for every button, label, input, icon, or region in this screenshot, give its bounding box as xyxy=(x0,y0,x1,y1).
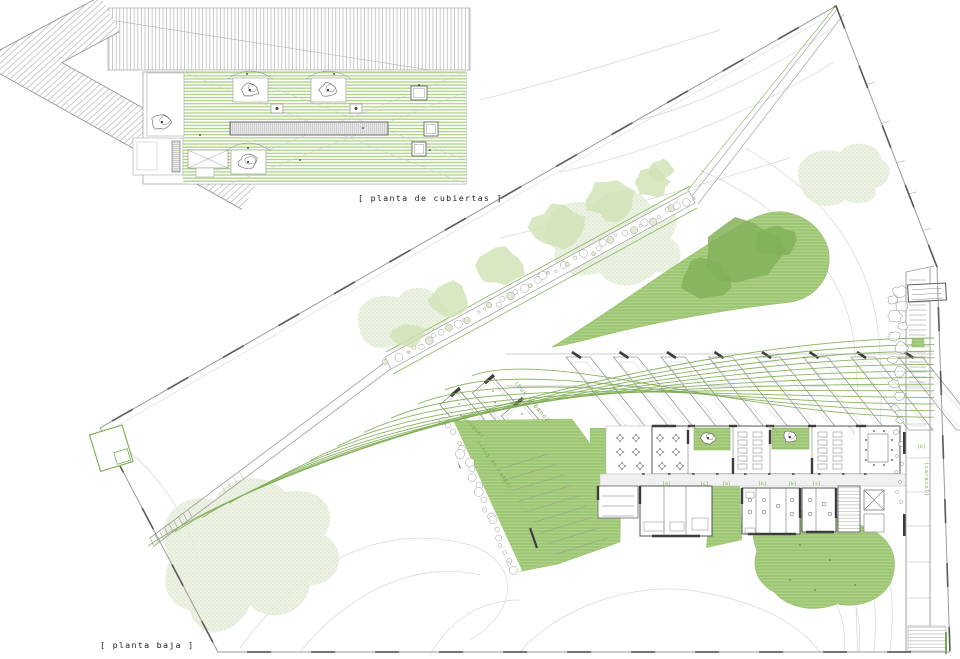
lawn-marker xyxy=(854,584,856,586)
boulder xyxy=(496,302,501,307)
chair-dot xyxy=(672,451,674,453)
boulder xyxy=(683,199,691,207)
building-room xyxy=(598,486,638,518)
room-tag: [b] xyxy=(917,444,926,450)
room-tag: [e] xyxy=(662,481,671,487)
roof-skylight xyxy=(412,142,426,156)
dimension-tick xyxy=(909,192,917,194)
building-room xyxy=(640,486,712,536)
wc-fixture xyxy=(748,510,752,514)
street-tree xyxy=(896,301,908,311)
roof-dot xyxy=(362,127,364,129)
roof-dot xyxy=(246,73,248,75)
boulder xyxy=(599,239,606,246)
roof-plan-label: [ planta de cubiertas ] xyxy=(358,193,503,203)
spiral-path-label: (caracol) xyxy=(923,462,929,497)
boulder xyxy=(456,449,465,458)
boulder xyxy=(468,474,476,482)
street-rock xyxy=(900,462,903,465)
contour-line xyxy=(300,571,480,652)
room-tag: [b] xyxy=(758,481,767,487)
boulder xyxy=(446,324,453,331)
door-dash xyxy=(668,473,671,475)
roof-vent-dot xyxy=(355,107,358,110)
wc-fixture xyxy=(828,512,832,516)
building-room xyxy=(606,426,652,474)
chair-dot xyxy=(635,448,637,450)
street-tree xyxy=(898,322,909,330)
chair-dot xyxy=(639,437,641,439)
boulder xyxy=(622,230,628,236)
boulder xyxy=(431,333,435,337)
desk xyxy=(818,440,827,445)
chair-dot xyxy=(676,465,678,467)
boulder xyxy=(607,236,614,243)
chair-dot xyxy=(663,451,665,453)
chair-dot xyxy=(619,455,621,457)
street-tree xyxy=(888,310,903,322)
boulder xyxy=(464,318,470,324)
boulder xyxy=(692,197,695,200)
boulder xyxy=(395,354,403,362)
door-dash xyxy=(864,473,867,475)
street-tree xyxy=(894,366,906,377)
chair-dot xyxy=(632,437,634,439)
desk xyxy=(738,432,747,437)
boulder xyxy=(486,302,491,307)
boulder xyxy=(509,566,517,574)
roof-dot xyxy=(299,159,301,161)
chair-dot xyxy=(679,462,681,464)
wc-fixture xyxy=(822,502,826,506)
boulder xyxy=(555,270,557,272)
boulder xyxy=(482,508,486,512)
boulder xyxy=(596,246,601,251)
wc-fixture xyxy=(790,498,794,502)
chair-dot xyxy=(635,441,637,443)
boulder xyxy=(446,423,451,428)
boulder xyxy=(495,527,500,532)
chair-dot xyxy=(865,449,867,451)
contour-line xyxy=(480,30,720,100)
door-dash xyxy=(716,473,719,475)
desk xyxy=(818,464,827,469)
roof-equip-louver xyxy=(172,141,180,172)
chair-dot xyxy=(675,441,677,443)
chair-dot xyxy=(663,437,665,439)
siteplan-drawing: [e][c][a][b][k][s][b] [ planta de cubier… xyxy=(0,0,960,659)
roof-louver-strip xyxy=(230,122,388,135)
street-rock xyxy=(899,500,902,503)
desk xyxy=(753,464,762,469)
desk xyxy=(753,440,762,445)
chair-dot xyxy=(865,459,867,461)
contour-line xyxy=(520,589,820,652)
boulder xyxy=(539,271,547,279)
tree-trunk-dot xyxy=(161,121,163,123)
dimension-tick xyxy=(881,121,889,123)
chair-dot xyxy=(675,448,677,450)
boulder xyxy=(425,337,433,345)
chair-dot xyxy=(683,465,685,467)
desk xyxy=(833,456,842,461)
building-room xyxy=(864,514,884,532)
building-room xyxy=(802,488,836,532)
desk xyxy=(833,448,842,453)
street-tree xyxy=(887,356,898,364)
chair-dot xyxy=(625,465,627,467)
boulder xyxy=(513,290,518,295)
boulder xyxy=(615,234,618,237)
desk xyxy=(753,448,762,453)
chair-dot xyxy=(675,434,677,436)
wc-fixture xyxy=(748,498,752,502)
roof-skylight xyxy=(424,122,438,136)
boulder xyxy=(500,296,505,301)
wc-fixture xyxy=(762,510,766,514)
boulder xyxy=(407,351,410,354)
chair-dot xyxy=(656,437,658,439)
chair-dot xyxy=(639,462,641,464)
street-tree xyxy=(895,341,909,353)
desk xyxy=(753,432,762,437)
entrance-plot-outline xyxy=(90,425,134,471)
chair-dot xyxy=(665,465,667,467)
boulder xyxy=(673,202,680,209)
chair-dot xyxy=(661,469,663,471)
chair-dot xyxy=(639,469,641,471)
roof-vent-dot xyxy=(276,107,279,110)
building-room xyxy=(600,474,906,486)
chair-dot xyxy=(621,462,623,464)
boulder xyxy=(592,252,596,256)
boulder xyxy=(528,284,532,288)
door-dash xyxy=(692,473,695,475)
chair-dot xyxy=(623,437,625,439)
boulder xyxy=(565,263,569,267)
chair-dot xyxy=(883,464,885,466)
boulder xyxy=(657,216,661,220)
boulder xyxy=(573,256,577,260)
roof-plan xyxy=(20,8,470,192)
door-dash xyxy=(792,473,795,475)
green-marker xyxy=(912,339,924,347)
boulder xyxy=(419,344,424,349)
chair-dot xyxy=(621,469,623,471)
boulder xyxy=(469,466,475,472)
chair-dot xyxy=(672,437,674,439)
tree-trunk-dot xyxy=(707,437,709,439)
tree-trunk-dot xyxy=(327,89,329,91)
boulder xyxy=(481,497,487,503)
chair-dot xyxy=(873,464,875,466)
chair-dot xyxy=(623,451,625,453)
lawn-marker xyxy=(799,544,801,546)
roof-equip-small xyxy=(196,168,214,177)
dark-wall-bar xyxy=(903,432,906,454)
tree-canopy xyxy=(475,246,525,285)
door-dash xyxy=(818,473,821,475)
chair-dot xyxy=(891,439,893,441)
chair-dot xyxy=(679,469,681,471)
chair-dot xyxy=(891,449,893,451)
walkway-rung xyxy=(239,471,243,479)
tree-trunk-dot xyxy=(247,161,249,163)
chair-dot xyxy=(635,434,637,436)
wc-fixture xyxy=(808,512,812,516)
chair-dot xyxy=(661,462,663,464)
lawn-marker xyxy=(829,559,831,561)
siteplan-canvas: [e][c][a][b][k][s][b] [ planta de cubier… xyxy=(0,0,960,659)
door-dash xyxy=(744,473,747,475)
room-tag: [k] xyxy=(788,481,797,487)
desk xyxy=(818,448,827,453)
desk xyxy=(738,456,747,461)
roof-dot xyxy=(199,134,201,136)
building-room xyxy=(838,486,860,532)
boulder xyxy=(474,488,483,497)
roof-dot xyxy=(247,147,249,149)
desk xyxy=(833,440,842,445)
chair-dot xyxy=(659,448,661,450)
roof-dot xyxy=(429,149,431,151)
chair-dot xyxy=(639,451,641,453)
desk xyxy=(753,456,762,461)
street-rock xyxy=(895,490,898,493)
chair-dot xyxy=(635,455,637,457)
room-tag: [s] xyxy=(812,481,821,487)
stair-ramp xyxy=(908,626,946,652)
chair-dot xyxy=(658,465,660,467)
street-rock xyxy=(895,454,898,457)
dimension-tick xyxy=(897,161,905,163)
tree-trunk-dot xyxy=(789,436,791,438)
chair-dot xyxy=(643,465,645,467)
chair-dot xyxy=(659,434,661,436)
chair-dot xyxy=(616,437,618,439)
chair-dot xyxy=(675,455,677,457)
chair-dot xyxy=(679,451,681,453)
roof-top-band xyxy=(108,8,470,70)
lawn-marker xyxy=(814,589,816,591)
bus-shelter xyxy=(908,283,947,302)
school-building-plan: [e][c][a][b][k][s][b] xyxy=(590,426,926,548)
desk xyxy=(738,440,747,445)
boulder xyxy=(579,249,587,257)
street-tree xyxy=(896,417,904,423)
contour-line xyxy=(560,62,834,172)
room-tag: [a] xyxy=(722,481,731,487)
wc-fixture xyxy=(776,504,780,508)
boulder xyxy=(496,535,502,541)
boulder xyxy=(507,562,511,566)
boulder xyxy=(498,544,502,548)
boulder xyxy=(458,441,462,445)
street-rock xyxy=(898,480,901,483)
chair-dot xyxy=(659,455,661,457)
wc-fixture xyxy=(762,498,766,502)
street-rock xyxy=(894,470,897,473)
boulder xyxy=(649,218,656,225)
chair-dot xyxy=(679,437,681,439)
chair-dot xyxy=(619,448,621,450)
entrance-plot xyxy=(90,425,134,471)
desk xyxy=(738,448,747,453)
dark-wall-bar xyxy=(903,514,906,536)
ground-plan-label: [ planta baja ] xyxy=(100,640,194,650)
chair-dot xyxy=(636,465,638,467)
tree-trunk-dot xyxy=(249,89,251,91)
chair-dot xyxy=(619,441,621,443)
boulder xyxy=(454,320,462,328)
boulder xyxy=(483,308,486,311)
door-dash xyxy=(768,473,771,475)
chair-dot xyxy=(616,451,618,453)
chair-dot xyxy=(883,430,885,432)
door-dash xyxy=(642,473,645,475)
room-tag: [c] xyxy=(700,481,709,487)
desk xyxy=(818,456,827,461)
vegetation-blob xyxy=(164,478,340,632)
street-tree xyxy=(888,295,898,304)
roof-dot xyxy=(418,84,420,86)
wc-fixture xyxy=(808,498,812,502)
chair-dot xyxy=(619,434,621,436)
desk xyxy=(833,464,842,469)
boulder xyxy=(382,359,387,364)
boulder xyxy=(546,271,549,274)
boulder xyxy=(521,284,529,292)
desk xyxy=(738,464,747,469)
wc-fixture xyxy=(790,512,794,516)
contour-line xyxy=(640,28,832,120)
desk xyxy=(818,432,827,437)
desk xyxy=(833,432,842,437)
boulder xyxy=(466,458,475,467)
chair-dot xyxy=(659,441,661,443)
chair-dot xyxy=(891,459,893,461)
building-room xyxy=(868,434,888,462)
dimension-tick xyxy=(866,82,874,84)
boulder xyxy=(489,516,497,524)
boulder xyxy=(438,329,444,335)
lawn-marker xyxy=(789,579,791,581)
dimension-tick xyxy=(923,228,931,230)
chair-dot xyxy=(632,451,634,453)
street-tree xyxy=(889,332,900,341)
door-dash xyxy=(842,473,845,475)
boulder xyxy=(478,311,481,314)
boulder xyxy=(641,219,648,226)
chair-dot xyxy=(656,451,658,453)
chair-dot xyxy=(618,465,620,467)
chair-dot xyxy=(865,439,867,441)
boulder xyxy=(503,551,507,555)
boulder xyxy=(631,227,638,234)
chair-dot xyxy=(873,430,875,432)
vegetation-blob xyxy=(798,144,890,206)
contour-line xyxy=(430,600,520,655)
boulder xyxy=(450,429,456,435)
roof-dot xyxy=(333,73,335,75)
